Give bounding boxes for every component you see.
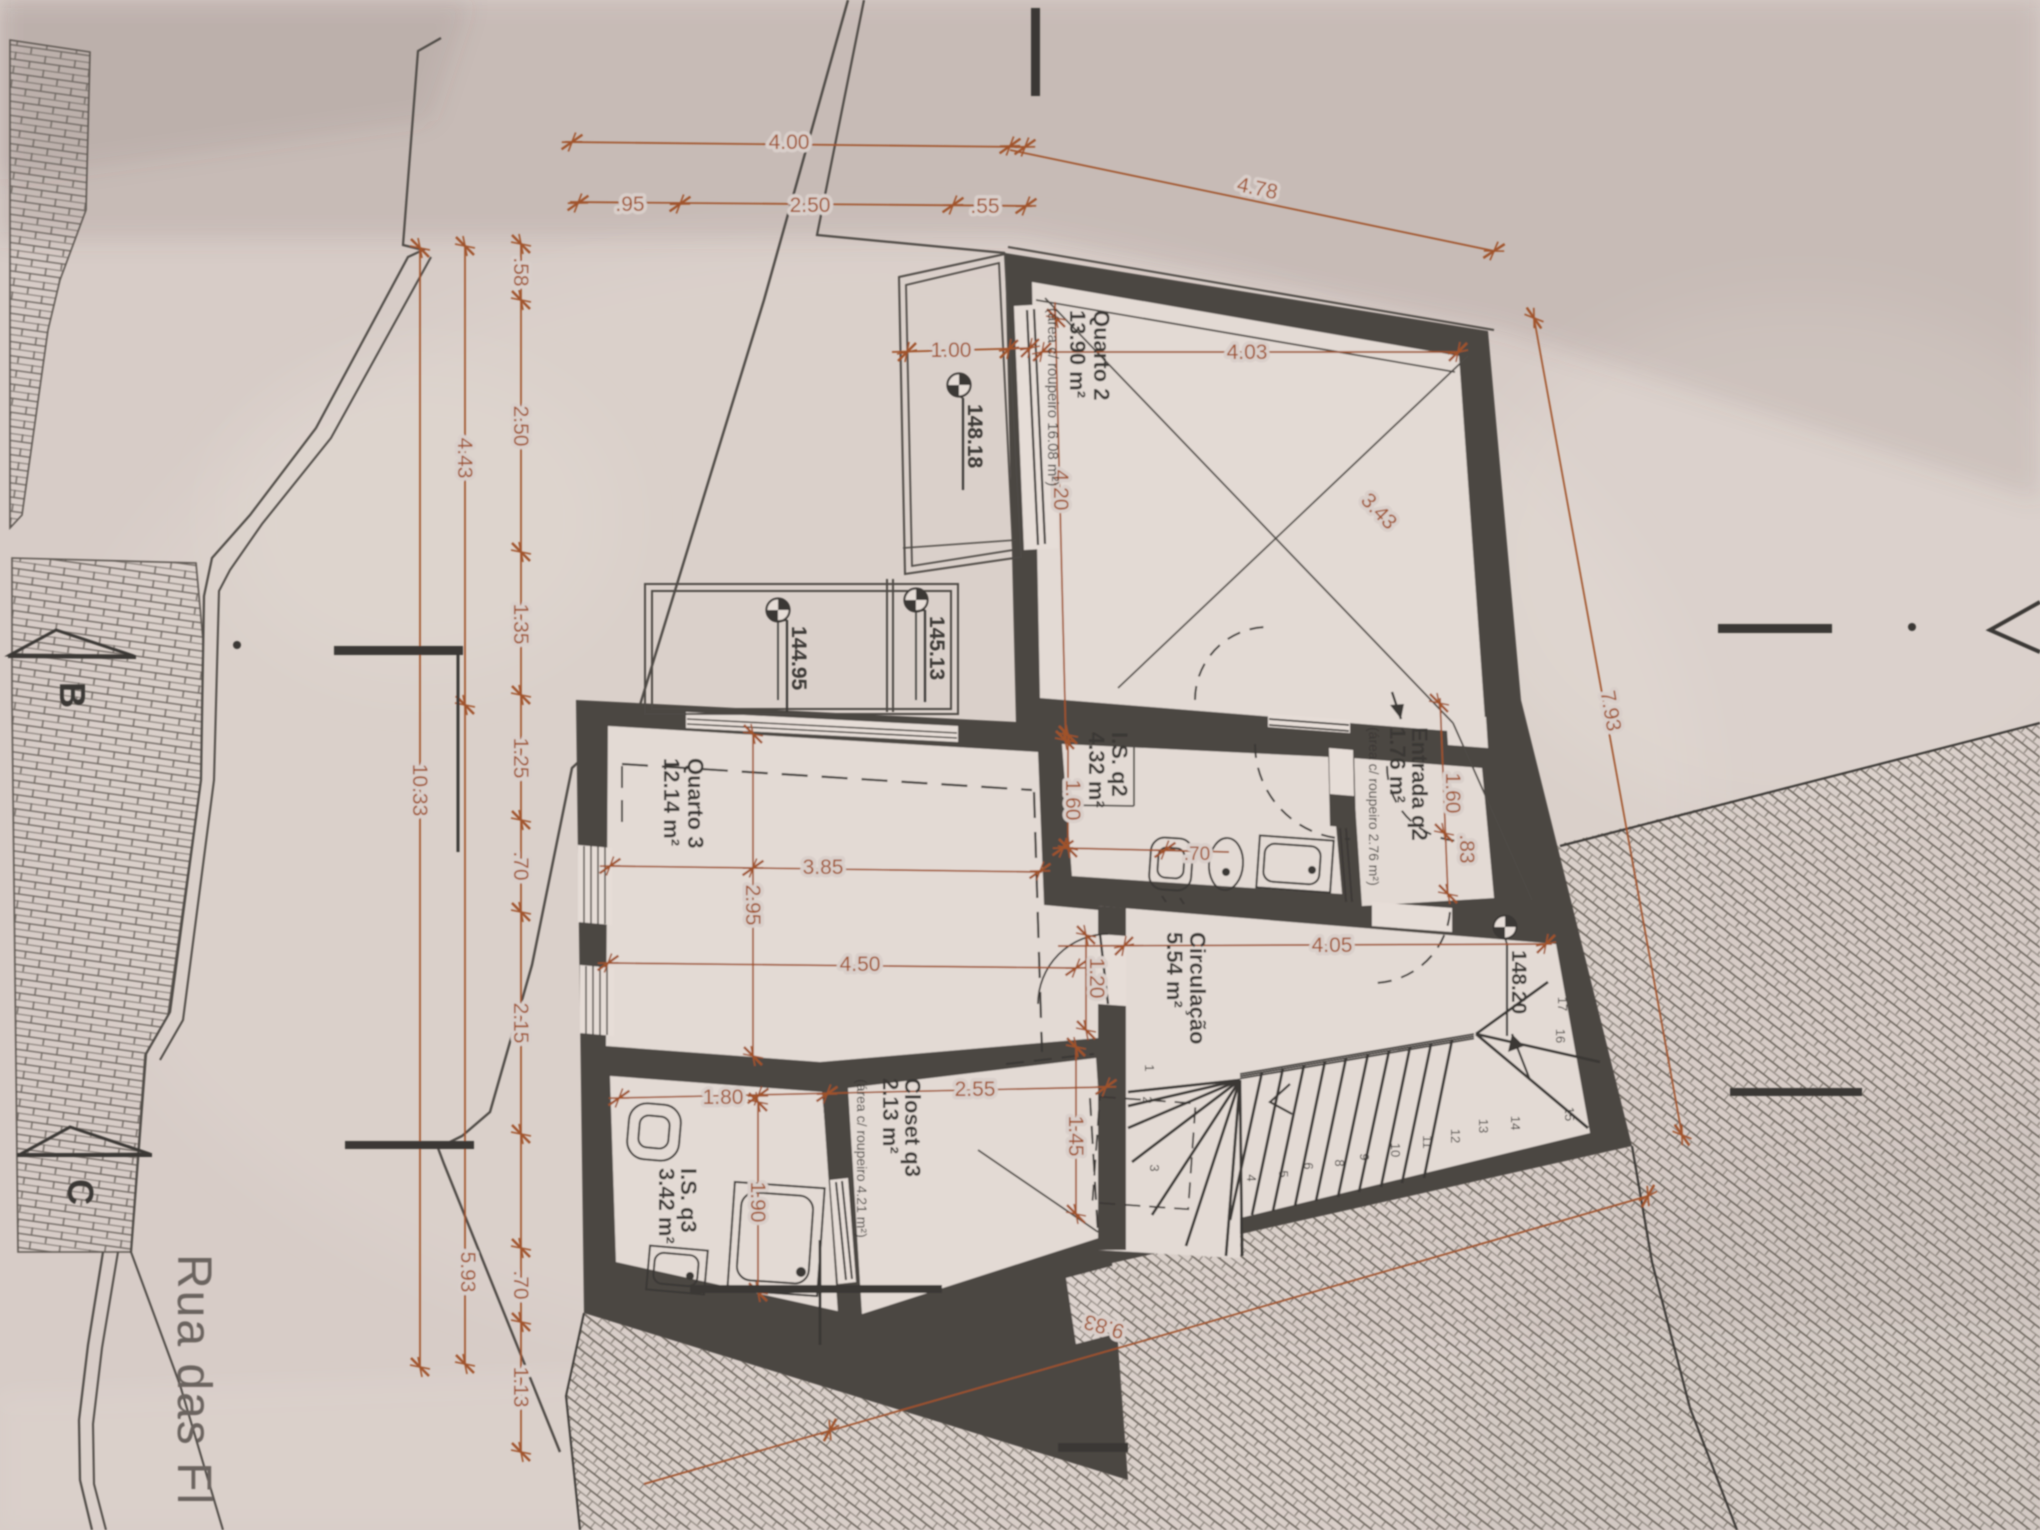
svg-text:10.33: 10.33 bbox=[408, 764, 431, 817]
svg-text:14: 14 bbox=[1508, 1116, 1523, 1130]
svg-text:5.93: 5.93 bbox=[456, 1252, 479, 1293]
svg-text:145.13: 145.13 bbox=[925, 616, 948, 680]
svg-text:5: 5 bbox=[1276, 1170, 1291, 1177]
svg-text:2.55: 2.55 bbox=[955, 1078, 996, 1101]
svg-text:3.42 m²: 3.42 m² bbox=[654, 1168, 679, 1244]
svg-text:148.20: 148.20 bbox=[1507, 950, 1530, 1014]
svg-text:1.60: 1.60 bbox=[1061, 780, 1084, 821]
svg-text:1.25: 1.25 bbox=[509, 738, 532, 779]
svg-text:.55: .55 bbox=[970, 195, 999, 218]
svg-text:1.45: 1.45 bbox=[1064, 1116, 1087, 1157]
svg-text:4.00: 4.00 bbox=[769, 131, 810, 154]
svg-text:10: 10 bbox=[1388, 1143, 1403, 1157]
svg-text:8: 8 bbox=[1332, 1159, 1347, 1166]
svg-text:2.95: 2.95 bbox=[741, 885, 764, 926]
svg-text:4.32 m²: 4.32 m² bbox=[1084, 732, 1109, 808]
svg-text:(área c/ roupeiro 2.76 m²): (área c/ roupeiro 2.76 m²) bbox=[1366, 727, 1382, 886]
svg-text:12.14 m²: 12.14 m² bbox=[659, 758, 684, 846]
svg-text:.70: .70 bbox=[509, 851, 532, 880]
svg-text:9: 9 bbox=[1357, 1153, 1372, 1160]
svg-text:13.90 m²: 13.90 m² bbox=[1065, 310, 1090, 398]
svg-text:C: C bbox=[60, 1179, 101, 1205]
svg-text:17: 17 bbox=[1555, 997, 1570, 1011]
svg-text:3: 3 bbox=[1147, 1164, 1162, 1171]
svg-text:13: 13 bbox=[1476, 1119, 1491, 1133]
svg-text:2.15: 2.15 bbox=[509, 1003, 532, 1044]
svg-text:2: 2 bbox=[1140, 1096, 1155, 1103]
svg-text:2.50: 2.50 bbox=[790, 194, 831, 217]
svg-text:B: B bbox=[52, 682, 93, 708]
svg-text:15: 15 bbox=[1562, 1107, 1577, 1121]
svg-text:.70: .70 bbox=[509, 1270, 532, 1299]
svg-text:1.90: 1.90 bbox=[746, 1182, 769, 1223]
svg-text:Rua das Fl: Rua das Fl bbox=[167, 1254, 220, 1506]
svg-text:.83: .83 bbox=[1455, 834, 1478, 863]
svg-text:4.05: 4.05 bbox=[1312, 934, 1353, 957]
svg-text:4.03: 4.03 bbox=[1227, 341, 1268, 364]
svg-text:Quarto 3: Quarto 3 bbox=[683, 758, 708, 848]
svg-text:11: 11 bbox=[1420, 1135, 1435, 1149]
svg-text:.70: .70 bbox=[1184, 844, 1210, 865]
svg-text:(área c/ roupeiro 4.21 m²): (área c/ roupeiro 4.21 m²) bbox=[854, 1079, 870, 1238]
svg-text:1.13: 1.13 bbox=[509, 1367, 532, 1408]
svg-text:3.85: 3.85 bbox=[803, 856, 844, 879]
svg-text:148.18: 148.18 bbox=[963, 404, 986, 469]
svg-text:1.60: 1.60 bbox=[1441, 773, 1464, 814]
svg-text:1.35: 1.35 bbox=[509, 604, 532, 645]
svg-text:1.00: 1.00 bbox=[931, 339, 972, 362]
svg-text:1.20: 1.20 bbox=[1085, 958, 1108, 999]
svg-text:.58: .58 bbox=[509, 257, 532, 286]
svg-text:4.43: 4.43 bbox=[453, 438, 476, 479]
svg-text:.95: .95 bbox=[615, 193, 644, 216]
svg-text:1.80: 1.80 bbox=[703, 1086, 744, 1109]
svg-text:1: 1 bbox=[1142, 1064, 1157, 1071]
svg-text:2.13 m²: 2.13 m² bbox=[878, 1078, 903, 1154]
svg-text:Quarto 2: Quarto 2 bbox=[1089, 310, 1114, 400]
svg-text:1.76 m²: 1.76 m² bbox=[1385, 727, 1410, 803]
svg-text:2.50: 2.50 bbox=[509, 406, 532, 447]
svg-text:I.S. q2: I.S. q2 bbox=[1107, 732, 1132, 797]
svg-text:144.95: 144.95 bbox=[787, 626, 810, 691]
svg-text:4.50: 4.50 bbox=[840, 953, 881, 976]
svg-text:16: 16 bbox=[1553, 1029, 1568, 1043]
svg-text:6: 6 bbox=[1301, 1162, 1316, 1169]
svg-text:4: 4 bbox=[1244, 1174, 1259, 1181]
svg-text:12: 12 bbox=[1448, 1129, 1463, 1143]
svg-text:(área c/ roupeiro 16.08 m²): (área c/ roupeiro 16.08 m²) bbox=[1044, 308, 1061, 486]
svg-text:5.54 m²: 5.54 m² bbox=[1162, 932, 1187, 1008]
svg-text:Circulação: Circulação bbox=[1185, 932, 1210, 1045]
